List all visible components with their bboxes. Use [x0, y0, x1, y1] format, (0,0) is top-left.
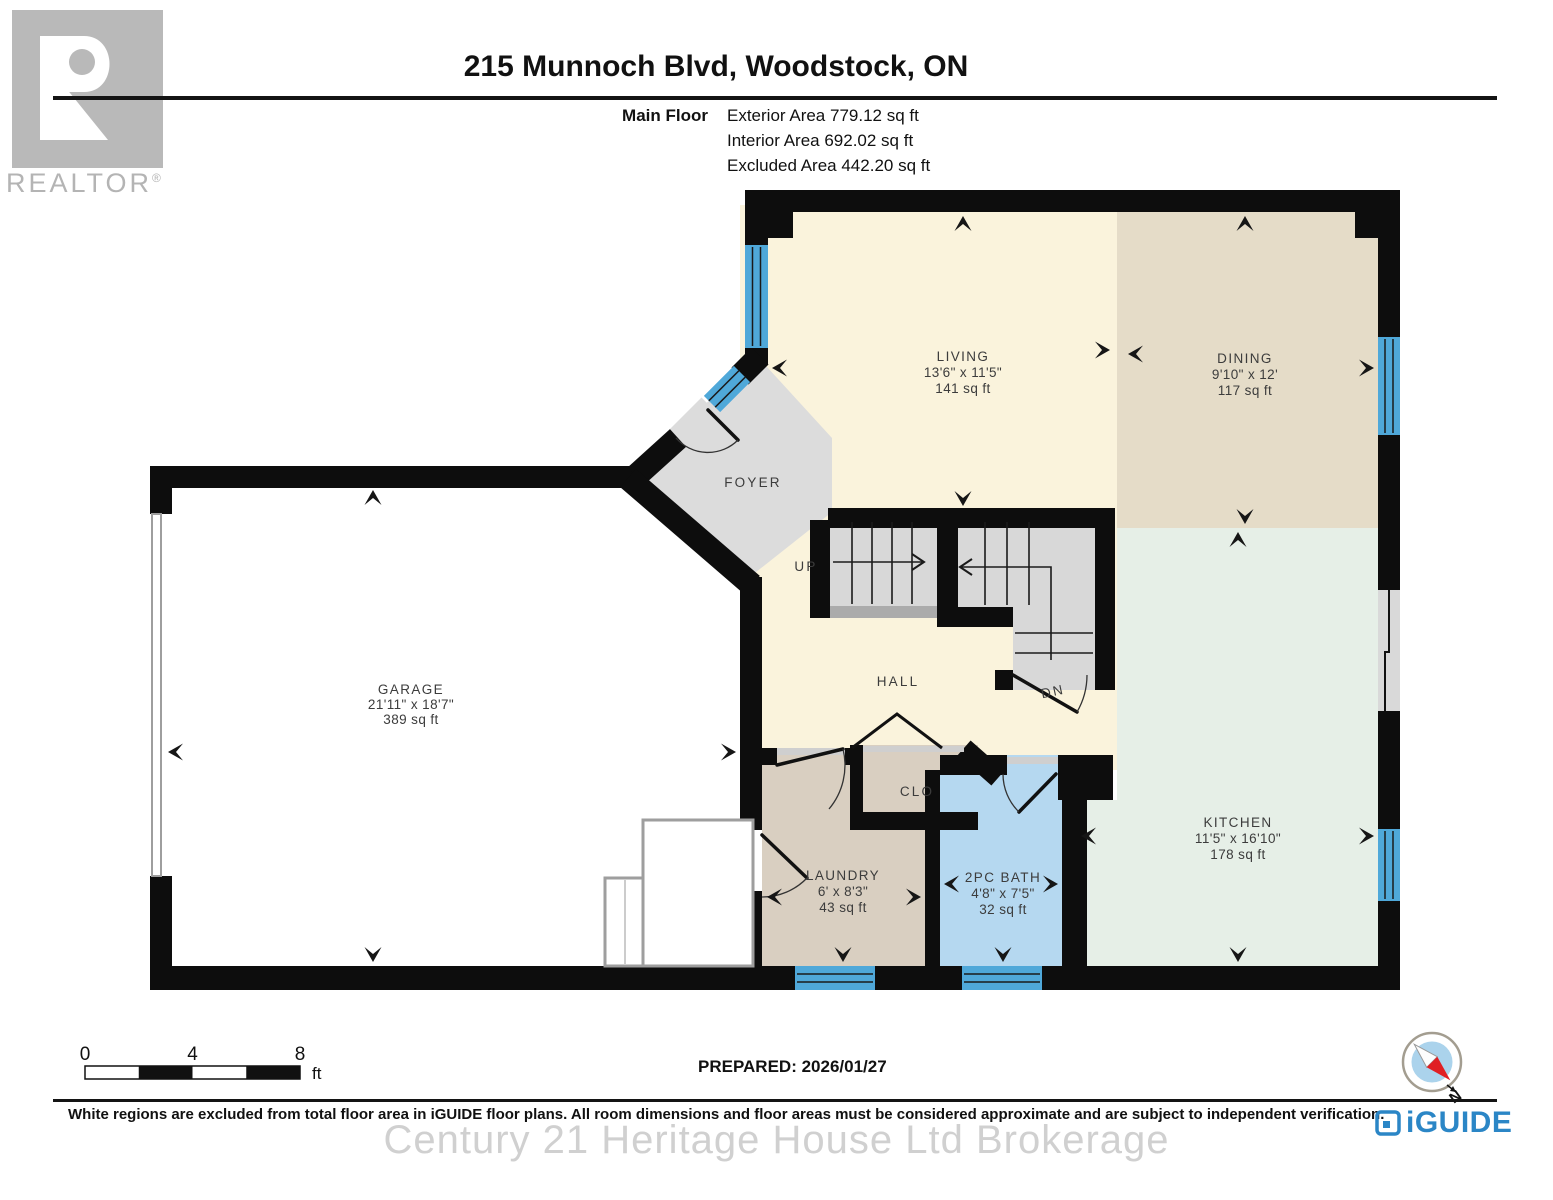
scale-eight: 8	[295, 1044, 306, 1065]
bath-door-sill	[1007, 757, 1058, 764]
brokerage-watermark: Century 21 Heritage House Ltd Brokerage	[0, 1118, 1553, 1163]
closet-opening-sill	[863, 746, 964, 752]
dining-label: DINING	[1217, 351, 1273, 366]
laundry-area: 43 sq ft	[819, 900, 866, 915]
north-label: N	[1446, 1087, 1465, 1107]
kitchen-label: KITCHEN	[1203, 815, 1272, 830]
living-area: 141 sq ft	[935, 381, 990, 396]
bath-window	[962, 966, 1042, 990]
dining-area: 117 sq ft	[1218, 383, 1272, 398]
bath-label: 2PC BATH	[965, 870, 1041, 885]
hall-label: HALL	[877, 674, 920, 689]
stairs-up-label: UP	[794, 559, 817, 574]
scale-zero: 0	[80, 1044, 91, 1065]
laundry-label: LAUNDRY	[806, 868, 880, 883]
iguide-logo: iGUIDE	[1374, 1106, 1512, 1140]
footer-rule	[53, 1099, 1497, 1102]
foyer-label: FOYER	[724, 475, 782, 490]
kitchen-window	[1378, 829, 1400, 901]
garage-overhead-door	[152, 514, 161, 876]
iguide-wordmark: iGUIDE	[1406, 1106, 1512, 1140]
kitchen-area: 178 sq ft	[1210, 847, 1265, 862]
living-window	[745, 245, 768, 348]
bath-dims: 4'8" x 7'5"	[971, 886, 1034, 901]
laundry-window	[795, 966, 875, 990]
floor-plan-drawing: LIVING 13'6" x 11'5" 141 sq ft DINING 9'…	[0, 0, 1553, 1200]
stairs-up-edge	[830, 606, 937, 618]
compass: N	[1403, 1033, 1465, 1107]
scale-unit: ft	[312, 1064, 322, 1083]
kitchen-floor	[1087, 528, 1378, 978]
floor-plan-page: REALTOR® 215 Munnoch Blvd, Woodstock, ON…	[0, 0, 1553, 1200]
sliding-door	[1378, 590, 1400, 711]
garage-area: 389 sq ft	[383, 712, 438, 727]
prepared-date: PREPARED: 2026/01/27	[698, 1057, 887, 1077]
iguide-mark-icon	[1374, 1109, 1402, 1137]
dining-window	[1378, 337, 1400, 435]
living-label: LIVING	[937, 349, 990, 364]
dining-dims: 9'10" x 12'	[1212, 367, 1278, 382]
garage-label: GARAGE	[378, 682, 444, 697]
scale-bar: 0 4 8 ft	[80, 1044, 322, 1083]
kitchen-dims: 11'5" x 16'10"	[1195, 831, 1281, 846]
disclaimer-text: White regions are excluded from total fl…	[68, 1106, 1384, 1123]
closet-label: CLO	[900, 784, 934, 799]
living-dims: 13'6" x 11'5"	[924, 365, 1002, 380]
garage-dims: 21'11" x 18'7"	[368, 697, 454, 712]
scale-four: 4	[187, 1044, 198, 1065]
laundry-dims: 6' x 8'3"	[818, 884, 868, 899]
bath-area: 32 sq ft	[979, 902, 1026, 917]
